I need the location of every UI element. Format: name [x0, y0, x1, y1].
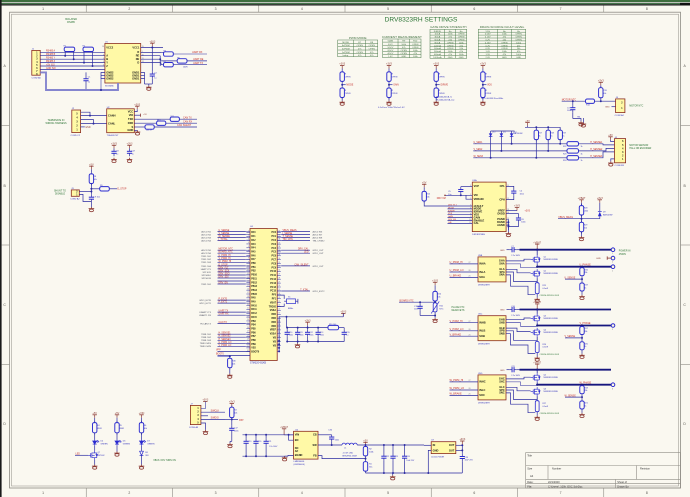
svg-text:OPEN: OPEN: [401, 50, 408, 52]
svg-text:SNA: SNA: [499, 273, 505, 277]
svg-text:PF1: PF1: [272, 299, 277, 301]
svg-text:PC5: PC5: [272, 252, 277, 254]
svg-text:10k: 10k: [437, 296, 440, 298]
svg-text:TIM8 CH3: TIM8 CH3: [201, 340, 212, 342]
svg-text:Date:: Date:: [527, 480, 533, 484]
svg-text:1000mA: 1000mA: [433, 56, 442, 59]
svg-text:(LMR36006): (LMR36006): [294, 464, 305, 466]
svg-text:DRV_SDO: DRV_SDO: [219, 274, 230, 276]
svg-text:26: 26: [469, 388, 471, 390]
svg-text:DRV_CAL: DRV_CAL: [298, 248, 309, 251]
svg-text:NVMFS5C628NL: NVMFS5C628NL: [544, 391, 559, 393]
svg-text:VCC2: VCC2: [106, 45, 113, 49]
svg-text:0.2V: 0.2V: [486, 39, 491, 41]
svg-text:23: 23: [247, 315, 249, 317]
svg-text:GATE DRIVE STRENGTH: GATE DRIVE STRENGTH: [430, 25, 466, 29]
svg-text:80mA: 80mA: [434, 41, 440, 44]
svg-text:I_SENSE: I_SENSE: [282, 233, 293, 235]
svg-text:SPI MOSI: SPI MOSI: [201, 278, 211, 280]
svg-text:OPEN: OPEN: [345, 77, 351, 79]
svg-text:DRV_EN: DRV_EN: [448, 219, 457, 221]
svg-text:1xPWM: 1xPWM: [342, 52, 350, 54]
svg-text:10uF 25V: 10uF 25V: [465, 460, 474, 462]
svg-text:24: 24: [247, 319, 249, 321]
svg-text:PB10: PB10: [251, 275, 257, 277]
svg-text:R12: R12: [157, 120, 160, 122]
svg-text:VDD: VDD: [271, 322, 276, 324]
svg-text:30mA: 30mA: [434, 36, 440, 39]
svg-text:V_SENSE: V_SENSE: [565, 336, 576, 338]
svg-text:60mA: 60mA: [434, 38, 440, 41]
svg-text:VCC: VCC: [128, 109, 134, 113]
svg-text:GND1: GND1: [132, 76, 140, 80]
svg-text:VSS: VSS: [251, 348, 256, 350]
svg-text:1k: 1k: [581, 153, 583, 155]
svg-text:4: 4: [301, 7, 303, 11]
svg-text:VIN: VIN: [295, 433, 299, 437]
svg-text:EN: EN: [295, 438, 299, 442]
svg-text:E_STOP: E_STOP: [219, 264, 228, 266]
svg-text:10k: 10k: [603, 93, 606, 95]
svg-text:R18: R18: [584, 387, 587, 389]
svg-text:2.2u 100V: 2.2u 100V: [511, 255, 520, 257]
svg-text:39: 39: [278, 235, 280, 237]
svg-text:3: 3: [103, 54, 104, 56]
svg-text:38: 38: [278, 238, 280, 240]
svg-text:21: 21: [469, 334, 471, 336]
svg-text:1k: 1k: [581, 146, 583, 148]
svg-text:TXD: TXD: [128, 117, 133, 121]
svg-text:PC14: PC14: [270, 286, 276, 289]
svg-text:U_PHASE: U_PHASE: [580, 263, 592, 266]
svg-text:3: 3: [248, 238, 249, 240]
svg-text:TIM_CHN: TIM_CHN: [283, 239, 294, 241]
svg-text:INLC: INLC: [479, 388, 485, 392]
svg-text:CPL: CPL: [500, 184, 506, 188]
svg-text:OPEN: OPEN: [515, 39, 522, 41]
svg-text:TIM1 CH3: TIM1 CH3: [201, 262, 212, 264]
svg-text:37: 37: [278, 242, 280, 244]
svg-text:45/90V: 45/90V: [619, 254, 627, 256]
svg-text:0.5mR: 0.5mR: [543, 288, 549, 290]
svg-text:GND ISO: GND ISO: [46, 68, 56, 70]
svg-text:VB: VB: [273, 338, 277, 340]
svg-text:1: 1: [612, 253, 613, 255]
svg-text:2: 2: [128, 491, 130, 495]
svg-text:SOA: SOA: [479, 275, 485, 279]
svg-text:PC7: PC7: [272, 260, 277, 262]
svg-text:BGND: BGND: [295, 453, 303, 457]
svg-text:TIM_CH1N2: TIM_CH1N2: [313, 240, 326, 242]
svg-text:RST: RST: [239, 420, 244, 422]
svg-text:ADC1 IN5: ADC1 IN5: [201, 249, 211, 252]
svg-text:GND: GND: [502, 57, 507, 59]
svg-text:NVMFS5C628NL: NVMFS5C628NL: [544, 377, 559, 379]
svg-text:100n: 100n: [520, 193, 524, 195]
svg-text:PA2: PA2: [251, 239, 256, 242]
svg-text:SNC: SNC: [499, 391, 505, 395]
svg-text:17: 17: [247, 292, 249, 294]
svg-text:20V/V: 20V/V: [387, 50, 393, 52]
svg-text:PA5: PA5: [251, 250, 256, 253]
svg-text:VM: VM: [474, 193, 478, 197]
svg-text:PC15: PC15: [270, 291, 276, 293]
svg-text:PC0: PC0: [272, 232, 277, 234]
svg-text:MOTOR NTC: MOTOR NTC: [629, 105, 643, 107]
svg-text:5V/V: 5V/V: [388, 44, 393, 46]
svg-text:4: 4: [301, 491, 303, 495]
svg-text:W_SENSE: W_SENSE: [565, 395, 577, 397]
svg-text:GND: GND: [516, 57, 521, 59]
svg-text:PA4: PA4: [251, 247, 256, 250]
svg-text:DRV_EN: DRV_EN: [219, 283, 229, 285]
svg-text:PA7: PA7: [251, 258, 256, 261]
svg-text:CON2 A2: CON2 A2: [70, 197, 80, 200]
svg-text:1u: 1u: [346, 335, 348, 337]
svg-text:V_BRAKE: V_BRAKE: [450, 333, 462, 336]
svg-text:GND: GND: [605, 107, 610, 109]
svg-text:SNB: SNB: [499, 332, 505, 336]
svg-text:OPEN: OPEN: [501, 48, 508, 50]
svg-text:10mA: 10mA: [434, 33, 440, 36]
svg-text:16: 16: [247, 288, 249, 290]
svg-text:CON6 B3: CON6 B3: [615, 165, 625, 167]
svg-text:U_PWM_LO: U_PWM_LO: [219, 342, 232, 344]
svg-text:OPEN: OPEN: [486, 77, 492, 79]
svg-text:V_SENSE: V_SENSE: [219, 233, 230, 235]
svg-text:6: 6: [473, 491, 475, 495]
svg-text:PB2: PB2: [251, 271, 256, 273]
svg-text:CAN_SILENT: CAN_SILENT: [294, 263, 309, 266]
svg-text:CANH: CANH: [108, 113, 116, 117]
svg-text:BOOT0: BOOT0: [216, 353, 225, 355]
svg-text:R17: R17: [539, 132, 542, 134]
svg-text:1R=IDA=30mA_hi: 1R=IDA=30mA_hi: [436, 96, 453, 99]
svg-text:T_SENSE: T_SENSE: [283, 236, 294, 238]
svg-text:UART TX: UART TX: [193, 62, 204, 65]
svg-text:POWER IN: POWER IN: [619, 250, 631, 252]
svg-text:PB12: PB12: [251, 282, 257, 284]
svg-text:IDRIVE: IDRIVE: [434, 31, 442, 33]
svg-text:DRV_SDI: DRV_SDI: [219, 277, 229, 279]
svg-text:8: 8: [646, 7, 648, 11]
svg-text:PB3: PB3: [251, 321, 256, 323]
svg-text:TIM8 CH2: TIM8 CH2: [201, 337, 212, 339]
svg-text:File:: File:: [527, 484, 532, 488]
svg-text:P_EXT0: P_EXT0: [219, 299, 228, 301]
svg-text:PC2: PC2: [272, 240, 277, 242]
svg-text:C9 10n: C9 10n: [94, 197, 100, 199]
svg-text:CSS2H-3920R-L200F: CSS2H-3920R-L200F: [540, 413, 560, 415]
svg-text:OPEN: OPEN: [369, 45, 376, 47]
svg-text:H_SENSE2: H_SENSE2: [219, 336, 232, 338]
svg-text:STM32G431KB: STM32G431KB: [250, 363, 267, 365]
svg-text:IDRIVE: IDRIVE: [440, 85, 448, 87]
svg-text:INHA: INHA: [479, 262, 485, 266]
svg-text:CAN RX: CAN RX: [183, 120, 192, 123]
svg-text:C22: C22: [386, 456, 389, 458]
svg-text:UART RX: UART RX: [219, 313, 229, 316]
svg-text:PA1: PA1: [251, 235, 256, 238]
svg-text:R23: R23: [563, 153, 566, 155]
svg-text:C19: C19: [248, 441, 251, 443]
svg-text:CANL: CANL: [108, 121, 116, 125]
svg-text:39k: 39k: [584, 331, 587, 333]
svg-text:HALL OR ENCODER: HALL OR ENCODER: [629, 147, 651, 150]
svg-text:100n: 100n: [335, 439, 339, 441]
svg-text:SPI MISO: SPI MISO: [201, 275, 211, 277]
svg-text:PB14: PB14: [251, 289, 257, 292]
svg-text:36: 36: [278, 246, 280, 248]
svg-text:PA3: PA3: [251, 243, 256, 246]
svg-text:CPH: CPH: [499, 197, 505, 201]
svg-text:5: 5: [103, 61, 104, 63]
svg-text:GND: GND: [500, 250, 505, 252]
svg-text:VDRAIN: VDRAIN: [474, 197, 484, 201]
svg-text:LD1117S30R: LD1117S30R: [431, 457, 444, 459]
svg-text:PA15: PA15: [251, 316, 257, 319]
svg-text:6: 6: [103, 65, 104, 67]
svg-text:PB0: PB0: [251, 263, 256, 265]
svg-text:140k: 140k: [584, 211, 588, 213]
svg-text:DRAIN-SOURCE FAULT LEVEL: DRAIN-SOURCE FAULT LEVEL: [480, 25, 525, 29]
svg-text:OPEN: OPEN: [345, 93, 351, 95]
svg-text:C7: C7: [511, 246, 513, 248]
svg-text:NTC: NTC: [439, 308, 444, 310]
svg-text:U_PWM_HI: U_PWM_HI: [450, 261, 464, 264]
svg-text:28: 28: [247, 335, 249, 337]
svg-text:0.13V: 0.13V: [485, 37, 491, 39]
svg-text:OPEN: OPEN: [501, 45, 508, 47]
svg-text:RS485 Z: RS485 Z: [46, 61, 56, 63]
svg-text:CSS2H-3920R-L200F: CSS2H-3920R-L200F: [540, 295, 560, 297]
svg-text:2/21/2020: 2/21/2020: [548, 480, 560, 484]
svg-text:BOARD NTC: BOARD NTC: [400, 299, 414, 302]
svg-text:CB: CB: [313, 433, 317, 437]
svg-text:WIRING HARNESS: WIRING HARNESS: [45, 122, 67, 125]
svg-text:GND: GND: [448, 57, 453, 59]
svg-text:8MHz: 8MHz: [288, 308, 293, 310]
svg-text:1: 1: [42, 491, 44, 495]
svg-text:NEAR FETS: NEAR FETS: [452, 309, 465, 312]
svg-text:TIM1 CH2: TIM1 CH2: [201, 259, 212, 261]
svg-text:100n: 100n: [414, 309, 418, 311]
svg-text:U_PWM_LO: U_PWM_LO: [450, 269, 464, 272]
svg-text:TIM1 CH4: TIM1 CH4: [201, 266, 212, 268]
svg-text:MOTOR SENSOR: MOTOR SENSOR: [629, 145, 648, 147]
svg-text:W_SENSE: W_SENSE: [219, 236, 231, 238]
svg-text:D: D: [137, 60, 139, 64]
svg-text:Title: Title: [527, 454, 532, 458]
svg-text:GND: GND: [459, 57, 464, 59]
svg-text:RS485: RS485: [67, 21, 75, 24]
svg-text:GPIO_EXT1: GPIO_EXT1: [199, 303, 212, 305]
svg-text:D11: D11: [503, 131, 506, 133]
svg-text:SHC: SHC: [499, 380, 505, 384]
svg-text:W_PWM_HI: W_PWM_HI: [450, 379, 464, 382]
svg-text:330R: 330R: [97, 428, 102, 430]
svg-text:TIM8 CH1: TIM8 CH1: [201, 334, 212, 336]
svg-text:26: 26: [469, 270, 471, 272]
svg-text:GND: GND: [500, 310, 505, 312]
svg-text:100n: 100n: [234, 431, 238, 433]
svg-text:330R: 330R: [119, 428, 124, 430]
svg-text:1.0V: 1.0V: [486, 51, 491, 53]
svg-text:OPEN: OPEN: [392, 93, 398, 95]
svg-text:H_SENSE1: H_SENSE1: [219, 333, 232, 335]
svg-text:W_PWM_LO: W_PWM_LO: [450, 387, 465, 390]
svg-text:1: 1: [42, 7, 44, 11]
svg-text:2: 2: [612, 329, 613, 331]
svg-text:E_STOP: E_STOP: [117, 189, 126, 191]
svg-text:10k: 10k: [584, 227, 587, 229]
svg-text:DRV8323RH: DRV8323RH: [478, 285, 490, 287]
svg-text:VCP: VCP: [474, 184, 480, 188]
svg-text:GREEN: GREEN: [147, 444, 155, 446]
svg-text:1k: 1k: [550, 135, 552, 137]
svg-text:DVDD: DVDD: [497, 211, 504, 215]
svg-text:OPEN: OPEN: [392, 77, 398, 79]
svg-text:5: 5: [248, 246, 249, 248]
svg-text:ADC2 IN6: ADC2 IN6: [313, 230, 323, 233]
svg-text:R: R: [137, 50, 139, 54]
svg-text:R18: R18: [550, 132, 553, 134]
svg-text:PC10: PC10: [270, 271, 276, 273]
svg-text:OPEN: OPEN: [357, 45, 364, 47]
svg-text:0.9V: 0.9V: [486, 48, 491, 50]
svg-text:ADC1 IN1: ADC1 IN1: [201, 230, 211, 233]
svg-text:24: 24: [278, 293, 280, 295]
svg-text:OPEN: OPEN: [369, 49, 376, 51]
svg-text:30k: 30k: [144, 428, 147, 430]
svg-text:TIM2 CH1: TIM2 CH1: [201, 284, 212, 286]
svg-text:2: 2: [128, 7, 130, 11]
svg-text:DRV_FLT: DRV_FLT: [448, 205, 457, 207]
svg-text:VDD: VDD: [271, 326, 276, 328]
svg-text:OPEN: OPEN: [515, 34, 522, 36]
svg-text:PC8: PC8: [272, 263, 277, 265]
svg-text:ADC1 IN2: ADC1 IN2: [201, 233, 211, 236]
svg-text:SW: SW: [313, 443, 318, 447]
svg-text:27: 27: [247, 331, 249, 333]
svg-text:10V/V: 10V/V: [387, 47, 393, 49]
svg-text:1u: 1u: [132, 154, 134, 156]
svg-text:IDRIVE: IDRIVE: [448, 210, 455, 212]
svg-text:ADC1 IN3: ADC1 IN3: [201, 236, 211, 239]
svg-text:2.2u 100V: 2.2u 100V: [511, 315, 520, 317]
svg-text:GPIO_OUT: GPIO_OUT: [313, 266, 325, 268]
svg-text:PA9: PA9: [251, 301, 256, 304]
svg-text:1u: 1u: [88, 82, 90, 84]
svg-text:UART DE: UART DE: [193, 58, 204, 61]
svg-text:7: 7: [560, 491, 562, 495]
svg-text:DRV8323RH: DRV8323RH: [472, 234, 485, 236]
svg-text:GREEN: GREEN: [101, 444, 109, 446]
svg-text:8: 8: [646, 491, 648, 495]
svg-text:PB1: PB1: [251, 267, 256, 269]
svg-text:440mA: 440mA: [434, 53, 441, 56]
svg-text:GRS2H54 430M: GRS2H54 430M: [342, 456, 357, 458]
svg-text:VBUS_MEAS: VBUS_MEAS: [558, 216, 573, 219]
svg-text:VBUS_MEAS: VBUS_MEAS: [283, 229, 298, 232]
svg-text:INLB: INLB: [479, 329, 485, 333]
svg-text:Sheet of: Sheet of: [617, 480, 627, 484]
svg-text:I_TOTAL: I_TOTAL: [218, 238, 228, 241]
svg-text:2: 2: [612, 262, 613, 264]
svg-text:27: 27: [469, 262, 471, 264]
svg-text:SOC: SOC: [479, 393, 485, 397]
svg-text:CON2 A2: CON2 A2: [615, 114, 625, 117]
svg-text:VBUS =ON TURN ON: VBUS =ON TURN ON: [153, 460, 176, 462]
svg-text:PC13: PC13: [270, 283, 276, 285]
svg-text:DRV8323RH: DRV8323RH: [478, 403, 490, 405]
svg-text:0.06V: 0.06V: [485, 34, 491, 36]
svg-text:GPIO_EXT2: GPIO_EXT2: [313, 291, 326, 293]
svg-text:39k: 39k: [584, 390, 587, 392]
svg-text:3: 3: [215, 7, 217, 11]
svg-text:VSSA: VSSA: [270, 309, 277, 312]
svg-text:GND: GND: [85, 127, 90, 129]
svg-text:1: 1: [612, 270, 613, 272]
svg-text:A: A: [106, 54, 108, 58]
svg-text:T_XTAL: T_XTAL: [300, 289, 309, 292]
svg-text:INHC: INHC: [479, 380, 485, 384]
svg-text:NVMFS5C628NL: NVMFS5C628NL: [544, 273, 559, 275]
svg-text:U_SENSE: U_SENSE: [565, 277, 576, 279]
svg-text:VDS: VDS: [487, 85, 492, 87]
svg-text:DISABLE: DISABLE: [55, 193, 66, 196]
svg-text:PB15: PB15: [251, 294, 257, 296]
svg-text:U_SENSE: U_SENSE: [219, 230, 230, 232]
svg-text:USART1 TX: USART1 TX: [199, 311, 211, 314]
svg-text:SWCLK: SWCLK: [211, 409, 220, 412]
svg-text:GND: GND: [596, 258, 601, 260]
svg-text:ADC2 IN7: ADC2 IN7: [313, 233, 323, 236]
svg-text:GAIN: GAIN: [448, 215, 453, 218]
svg-text:V_PHASE: V_PHASE: [580, 322, 591, 325]
svg-text:+5V ISO: +5V ISO: [46, 64, 55, 66]
svg-text:RE: RE: [136, 54, 140, 58]
svg-text:INLA: INLA: [479, 270, 485, 274]
svg-text:C16: C16: [511, 306, 514, 308]
svg-text:27: 27: [278, 281, 280, 283]
svg-text:RXD: RXD: [128, 121, 134, 125]
svg-text:VDD: VDD: [271, 318, 276, 320]
svg-text:100n: 100n: [320, 334, 324, 336]
svg-text:MODE: MODE: [448, 207, 455, 209]
svg-text:DE: DE: [136, 57, 140, 61]
svg-text:S: S: [131, 125, 133, 129]
svg-text:27: 27: [469, 380, 471, 382]
svg-text:V_PWM_HI: V_PWM_HI: [450, 320, 463, 323]
svg-text:1.5V: 1.5V: [486, 54, 491, 56]
svg-text:OPEN: OPEN: [412, 47, 419, 49]
svg-text:PB4: PB4: [251, 324, 256, 327]
svg-text:RS485 A: RS485 A: [46, 50, 56, 53]
svg-text:28: 28: [278, 277, 280, 279]
svg-text:NVMFS5C628NL: NVMFS5C628NL: [544, 332, 559, 334]
svg-text:U5A: U5A: [472, 179, 477, 182]
svg-text:10k: 10k: [234, 413, 237, 415]
svg-text:260mA: 260mA: [434, 50, 441, 53]
svg-text:30: 30: [278, 270, 280, 272]
svg-text:LED: LED: [76, 453, 81, 455]
svg-text:PB6: PB6: [251, 332, 256, 334]
svg-text:GREEN: GREEN: [123, 444, 131, 446]
svg-text:100k: 100k: [369, 452, 373, 454]
svg-text:MODE: MODE: [342, 42, 349, 44]
svg-text:UART TX: UART TX: [219, 310, 229, 313]
